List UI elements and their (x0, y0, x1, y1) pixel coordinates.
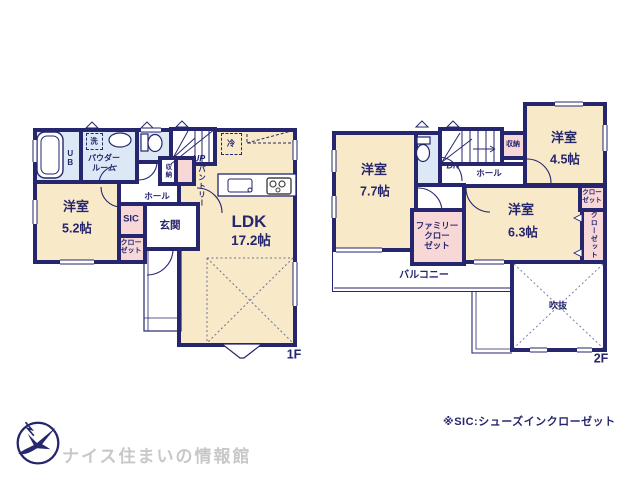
bedroom-63-name: 洋室 (508, 202, 534, 218)
brand-bird-logo (13, 417, 63, 467)
powder-room-label: パウダー ルーム (88, 153, 120, 172)
stairs-up-label: UP (193, 154, 206, 165)
fridge-label: 冷 (227, 139, 235, 149)
storage-2f-label: 収納 (506, 141, 520, 149)
pantry-label: パントリー (198, 165, 207, 208)
bedroom-52-name: 洋室 (63, 199, 89, 215)
room-bedroom-63 (462, 184, 586, 264)
bedroom-45-name: 洋室 (551, 130, 577, 146)
sic-label: SIC (123, 213, 139, 224)
floor1-tag: 1F (287, 348, 302, 363)
room-unit-bath (33, 128, 83, 184)
washer-space (86, 133, 103, 150)
hall-2f-label: ホール (476, 168, 502, 178)
entrance-label: 玄関 (160, 220, 181, 233)
hall-1f-label: ホール (144, 191, 170, 201)
bedroom-77-area: 7.7帖 (360, 185, 390, 200)
bedroom-52-area: 5.2帖 (62, 222, 92, 237)
storage-1f-label: 収納 (163, 164, 171, 179)
bedroom-63-area: 6.3帖 (508, 226, 538, 241)
unit-bath-label: UB (65, 149, 75, 167)
closet-1f-label: クロー ゼット (121, 240, 142, 257)
balcony-label: バルコニー (399, 270, 449, 282)
ldk-area: 17.2帖 (231, 233, 271, 249)
bedroom-45-area: 4.5帖 (550, 153, 580, 168)
floor2-tag: 2F (594, 352, 609, 367)
sic-note: ※SIC:シューズインクローゼット (443, 413, 616, 429)
closet-b-label: クローゼット (589, 211, 597, 259)
stairs-down-label: DN (447, 161, 460, 172)
void-label: 吹抜 (549, 301, 567, 312)
closet-a-label: クロー ゼット (582, 189, 602, 205)
bedroom-77-name: 洋室 (361, 162, 387, 178)
ldk-name: LDK (232, 212, 267, 232)
brand-name: ナイス住まいの情報館 (62, 442, 252, 467)
floorplan-sheet: 洋室 5.2帖 LDK 17.2帖 玄関 SIC クロー ゼット ホール 収納 … (0, 0, 640, 480)
family-closet-label: ファミリー クロー ゼット (416, 221, 459, 252)
